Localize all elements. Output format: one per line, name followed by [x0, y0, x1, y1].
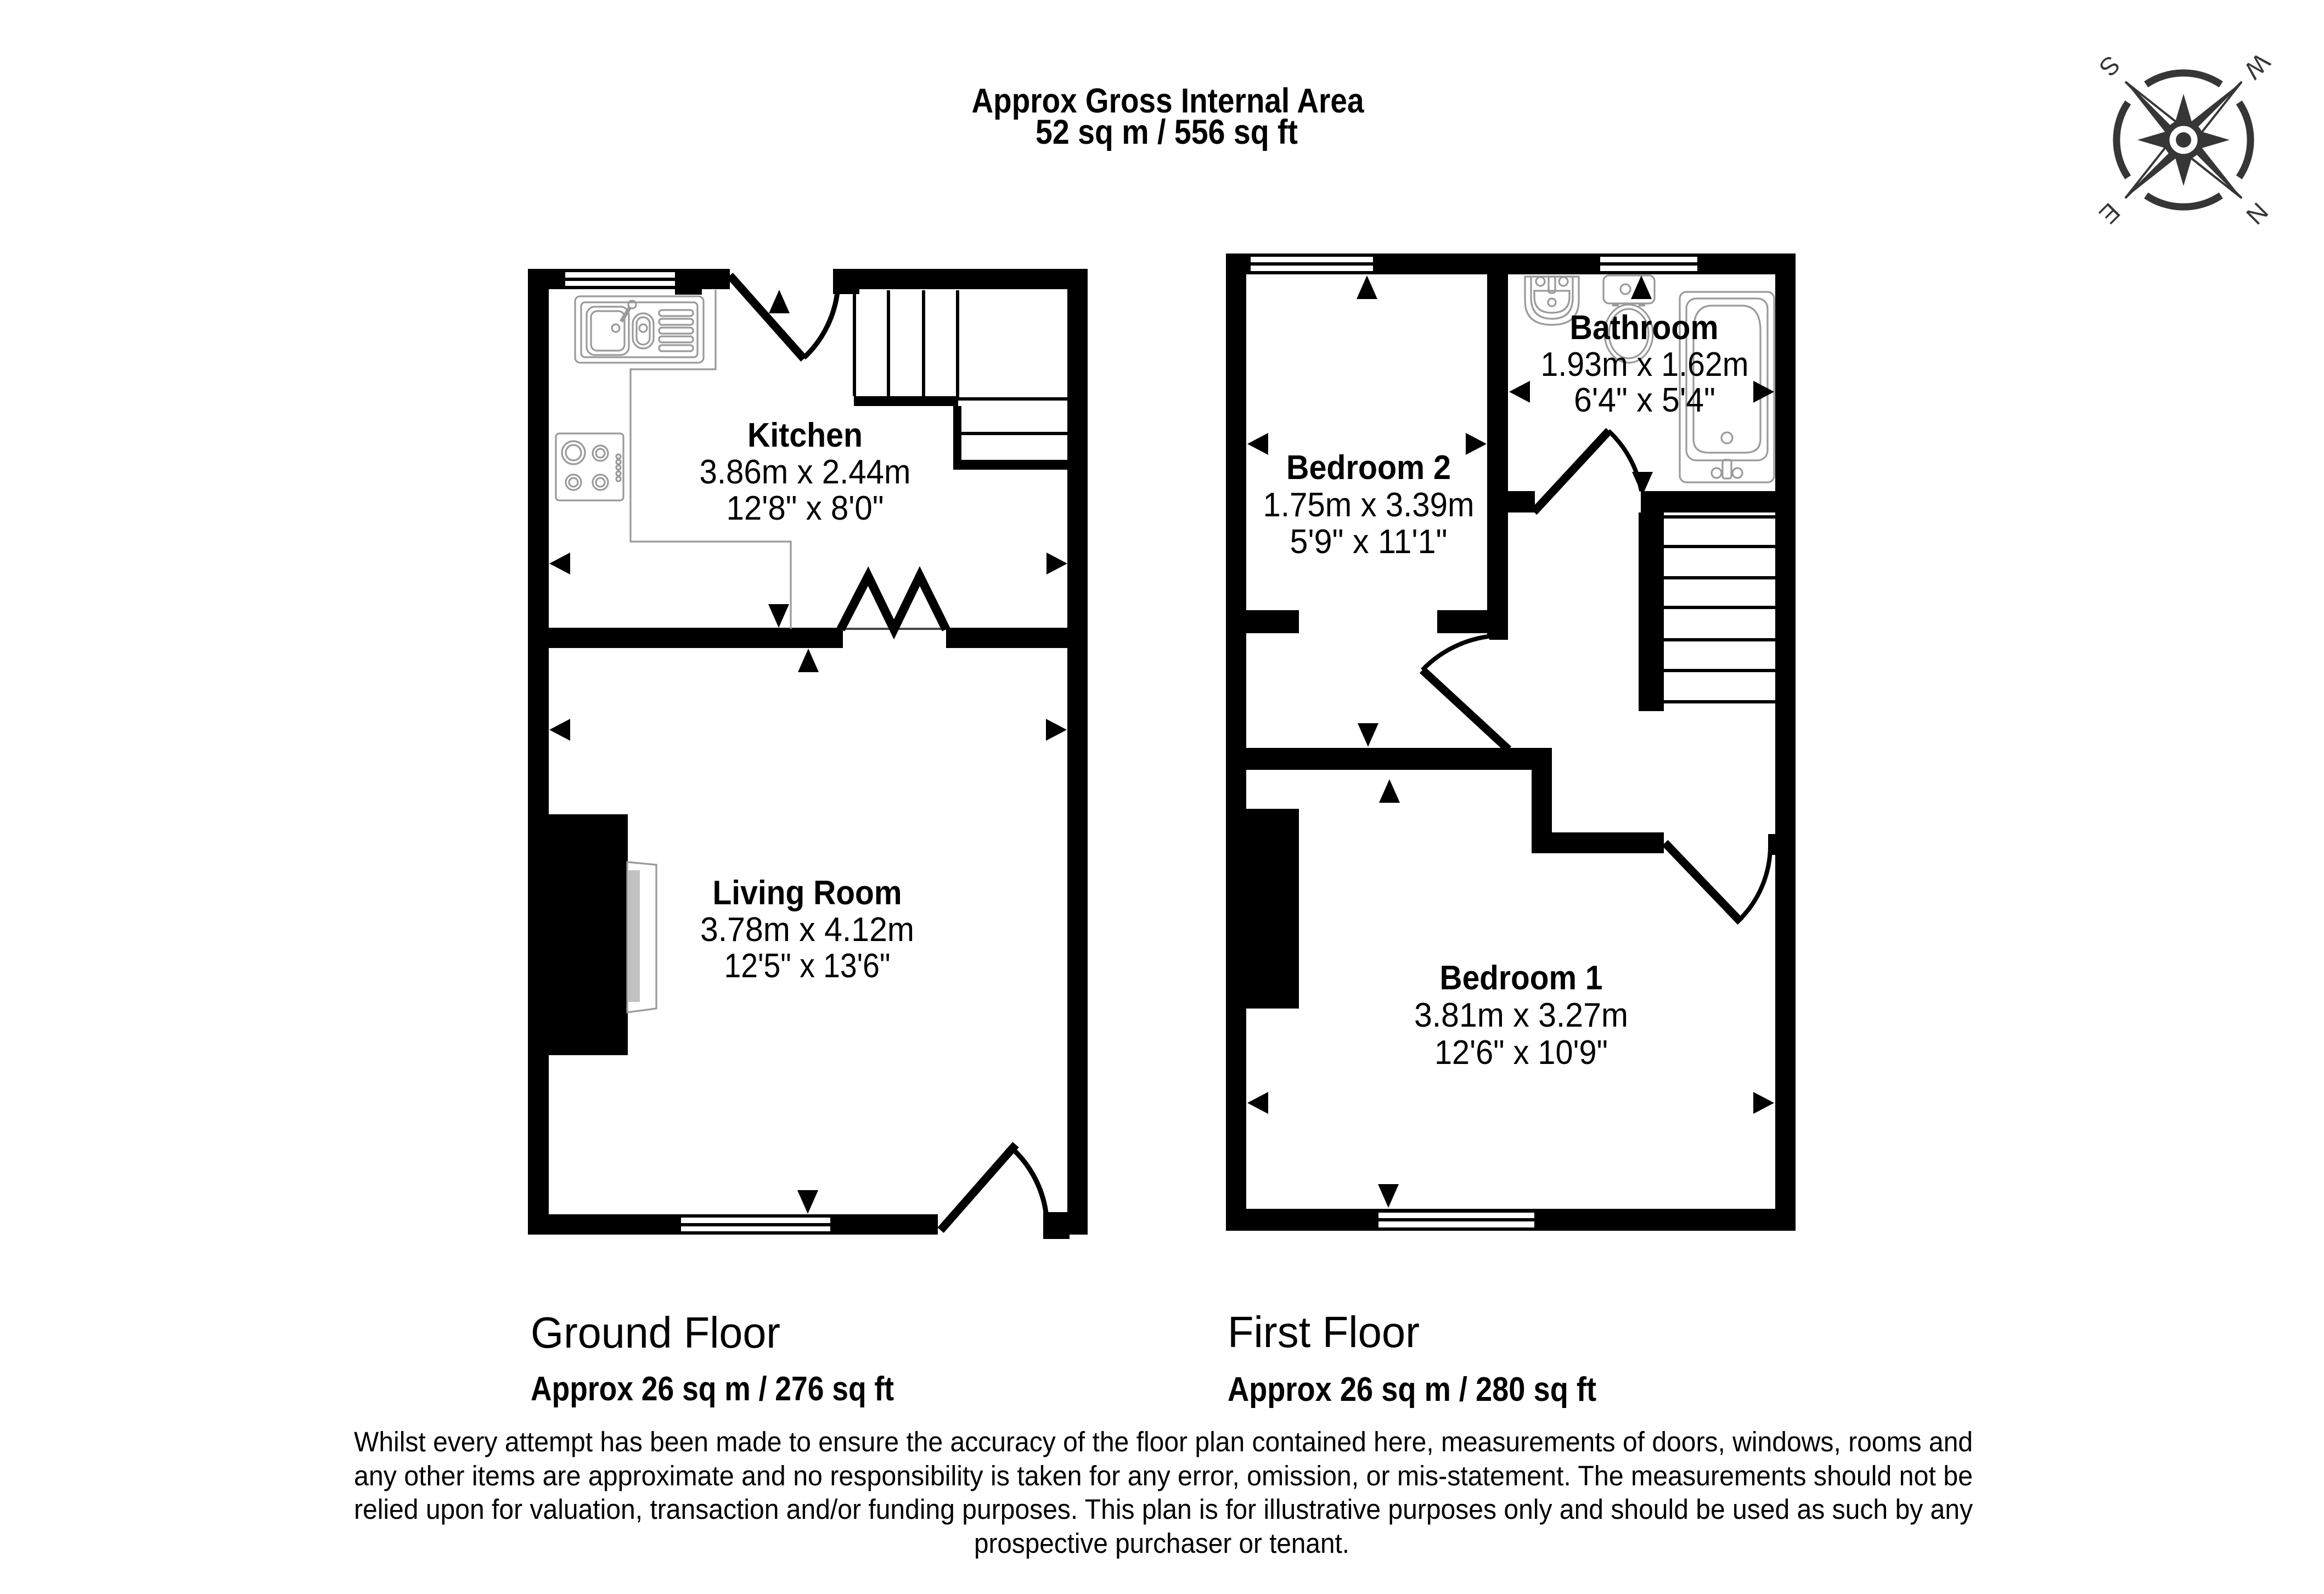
svg-text:Ground Floor: Ground Floor	[531, 1308, 780, 1357]
svg-text:1.75m x 3.39m: 1.75m x 3.39m	[1263, 486, 1475, 524]
svg-text:12'8" x 8'0": 12'8" x 8'0"	[727, 489, 884, 527]
svg-text:Bedroom 1: Bedroom 1	[1440, 959, 1603, 997]
svg-text:First Floor: First Floor	[1228, 1308, 1420, 1356]
svg-text:5'9" x 11'1": 5'9" x 11'1"	[1290, 523, 1448, 561]
svg-text:prospective purchaser or tenan: prospective purchaser or tenant.	[974, 1528, 1349, 1559]
svg-text:12'6" x 10'9": 12'6" x 10'9"	[1434, 1034, 1608, 1072]
svg-text:Whilst every attempt has been: Whilst every attempt has been made to en…	[354, 1426, 1973, 1457]
svg-text:relied upon for valuation, tra: relied upon for valuation, transaction a…	[354, 1494, 1973, 1525]
svg-text:Kitchen: Kitchen	[747, 416, 863, 454]
svg-text:Bedroom 2: Bedroom 2	[1286, 449, 1451, 487]
svg-text:3.78m x 4.12m: 3.78m x 4.12m	[700, 911, 914, 949]
svg-text:Approx 26 sq m / 276 sq ft: Approx 26 sq m / 276 sq ft	[531, 1370, 894, 1408]
svg-text:52 sq m / 556 sq ft: 52 sq m / 556 sq ft	[1036, 113, 1298, 151]
svg-text:Bathroom: Bathroom	[1570, 309, 1719, 347]
svg-text:12'5" x 13'6": 12'5" x 13'6"	[724, 947, 891, 985]
svg-text:3.81m x 3.27m: 3.81m x 3.27m	[1414, 996, 1628, 1034]
svg-text:6'4" x 5'4": 6'4" x 5'4"	[1574, 381, 1715, 419]
svg-text:Living Room: Living Room	[713, 874, 902, 912]
svg-text:1.93m x 1.62m: 1.93m x 1.62m	[1541, 346, 1749, 384]
svg-text:Approx 26 sq m / 280 sq ft: Approx 26 sq m / 280 sq ft	[1228, 1371, 1596, 1409]
svg-text:3.86m x 2.44m: 3.86m x 2.44m	[700, 453, 911, 491]
svg-text:any other items are approximat: any other items are approximate and no r…	[354, 1460, 1973, 1491]
